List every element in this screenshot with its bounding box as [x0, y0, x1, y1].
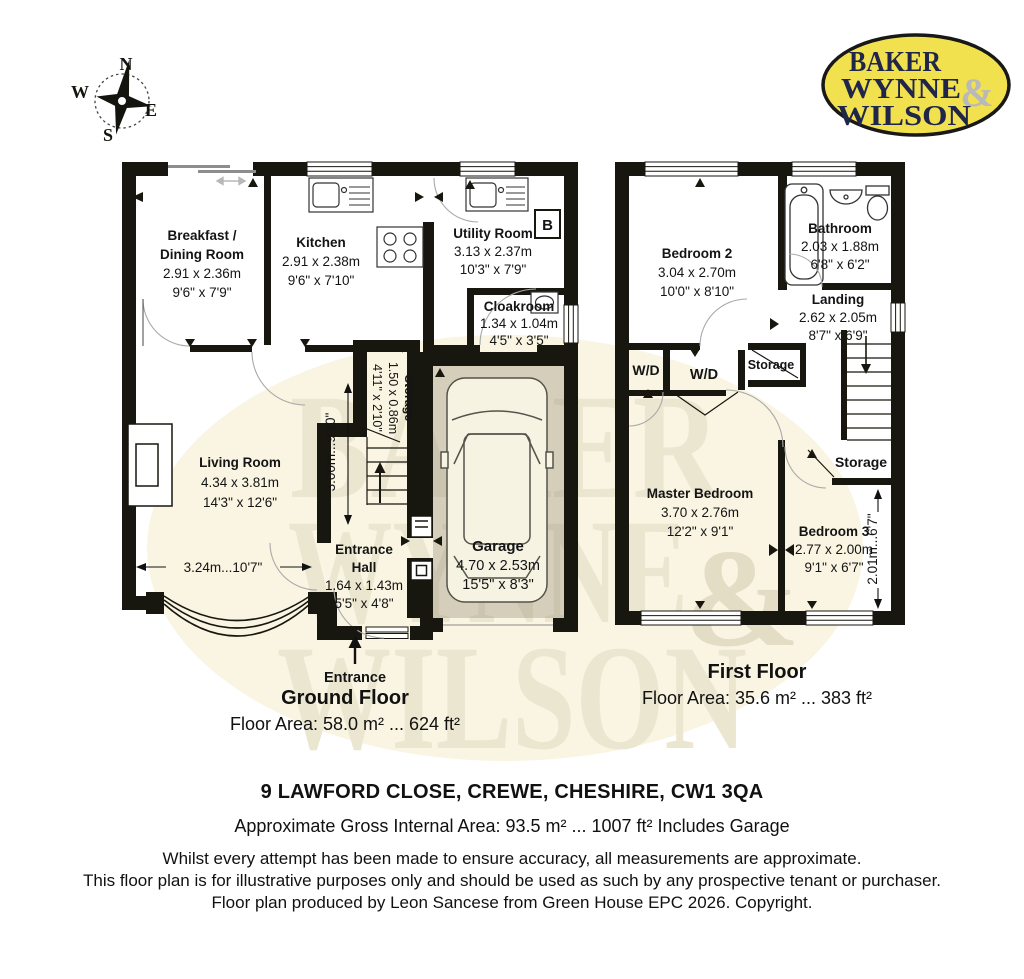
- garage-metric: 4.70 x 2.53m: [456, 558, 540, 574]
- property-address: 9 LAWFORD CLOSE, CREWE, CHESHIRE, CW1 3Q…: [261, 781, 764, 804]
- utility-imperial: 10'3" x 7'9": [460, 262, 527, 277]
- ground-floor-title: Ground Floor: [281, 687, 409, 710]
- disclaimer-line3: Floor plan produced by Leon Sancese from…: [211, 893, 812, 913]
- dim-horizontal-label: 3.24m...10'7": [184, 560, 263, 575]
- bedroom3-name: Bedroom 3: [799, 524, 870, 539]
- breakfast-room-name: Breakfast /: [167, 228, 236, 243]
- ground-floor-area: Floor Area: 58.0 m² ... 624 ft²: [230, 714, 460, 735]
- stairs-down: [847, 336, 891, 440]
- landing-imperial: 8'7" x 6'9": [808, 328, 867, 343]
- gf-storage-name: Storage: [402, 375, 416, 422]
- boiler-label: B: [542, 217, 553, 234]
- fireplace: [128, 424, 172, 506]
- floorplan-page: BAKER WYNNE & WILSON N W E S BAKER WYNNE…: [0, 0, 1024, 979]
- bedroom3-imperial: 9'1" x 6'7": [804, 560, 863, 575]
- disclaimer-line1: Whilst every attempt has been made to en…: [163, 849, 862, 869]
- bedroom2-imperial: 10'0" x 8'10": [660, 284, 734, 299]
- utility-name: Utility Room: [453, 226, 533, 241]
- first-floor-area: Floor Area: 35.6 m² ... 383 ft²: [642, 688, 872, 709]
- breakfast-room-name2: Dining Room: [160, 247, 244, 262]
- compass-icon: N W E S: [71, 54, 159, 145]
- landing-name: Landing: [812, 292, 865, 307]
- kitchen-metric: 2.91 x 2.38m: [282, 254, 360, 269]
- bedroom3-metric: 2.77 x 2.00m: [795, 542, 873, 557]
- cloakroom-imperial: 4'5" x 3'5": [489, 333, 548, 348]
- landing-metric: 2.62 x 2.05m: [799, 310, 877, 325]
- hall-imperial: 5'5" x 4'8": [334, 596, 393, 611]
- storage-top-label: Storage: [748, 358, 795, 372]
- breakfast-room-imperial: 9'6" x 7'9": [172, 285, 231, 300]
- toilet: [866, 186, 889, 220]
- compass-south-label: S: [103, 125, 113, 145]
- gross-internal-area: Approximate Gross Internal Area: 93.5 m²…: [234, 816, 789, 837]
- gf-storage-metric: 1.50 x 0.86m: [386, 362, 400, 434]
- kitchen-sink: [309, 178, 373, 212]
- wd2-label: W/D: [690, 367, 718, 383]
- compass-north-label: N: [120, 54, 133, 74]
- master-imperial: 12'2" x 9'1": [667, 524, 734, 539]
- entrance-label: Entrance: [324, 670, 386, 686]
- agency-logo: BAKER WYNNE & WILSON: [823, 35, 1009, 135]
- bedroom2-metric: 3.04 x 2.70m: [658, 265, 736, 280]
- dim-vertical-label: 3.00m...9'10": [323, 412, 338, 491]
- hall-name: Entrance: [335, 542, 393, 557]
- cloakroom-metric: 1.34 x 1.04m: [480, 316, 558, 331]
- kitchen-imperial: 9'6" x 7'10": [288, 273, 355, 288]
- ff-dim-vertical-label: 2.01m...6'7": [865, 513, 880, 584]
- living-room-metric: 4.34 x 3.81m: [201, 475, 279, 490]
- bedroom2-name: Bedroom 2: [662, 246, 733, 261]
- garage-imperial: 15'5" x 8'3": [462, 577, 533, 593]
- disclaimer-line2: This floor plan is for illustrative purp…: [83, 871, 941, 891]
- gf-storage-imperial: 4'11" x 2'10": [370, 364, 384, 432]
- bathroom-imperial: 6'8" x 6'2": [810, 257, 869, 272]
- living-room-name: Living Room: [199, 455, 281, 470]
- compass-west-label: W: [71, 82, 89, 102]
- bathroom-sink: [830, 190, 862, 204]
- master-metric: 3.70 x 2.76m: [661, 505, 739, 520]
- utility-metric: 3.13 x 2.37m: [454, 244, 532, 259]
- kitchen-hob: [377, 227, 423, 267]
- master-name: Master Bedroom: [647, 486, 754, 501]
- first-floor-title: First Floor: [708, 661, 807, 684]
- sliding-door: [168, 165, 256, 185]
- bathroom-metric: 2.03 x 1.88m: [801, 239, 879, 254]
- breakfast-room-metric: 2.91 x 2.36m: [163, 266, 241, 281]
- living-room-imperial: 14'3" x 12'6": [203, 495, 277, 510]
- hall-metric: 1.64 x 1.43m: [325, 578, 403, 593]
- logo-word3: WILSON: [837, 101, 971, 132]
- storage-right-label: Storage: [835, 454, 887, 470]
- compass-east-label: E: [145, 100, 157, 120]
- garage-name: Garage: [472, 538, 524, 555]
- bathroom-name: Bathroom: [808, 221, 872, 236]
- wd1-label: W/D: [632, 362, 659, 378]
- utility-sink: [466, 178, 528, 211]
- kitchen-name: Kitchen: [296, 235, 346, 250]
- hall-name2: Hall: [352, 560, 377, 575]
- cloakroom-name: Cloakroom: [484, 299, 555, 314]
